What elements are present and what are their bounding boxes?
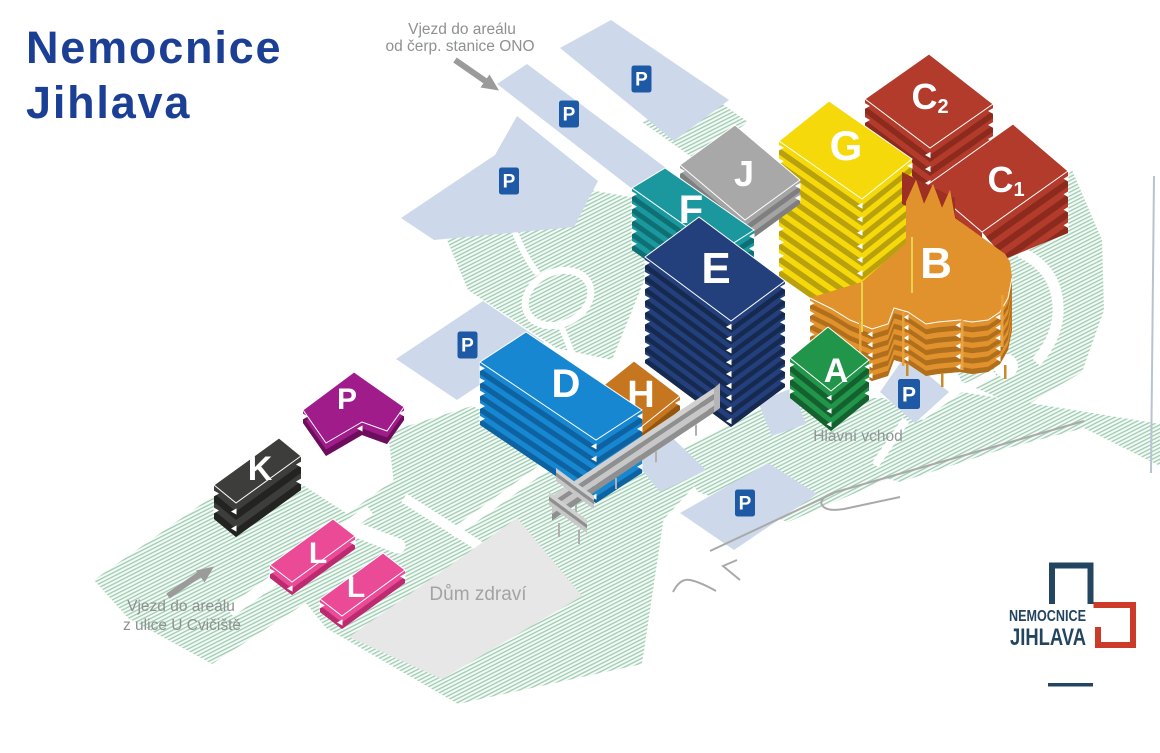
- svg-text:P: P: [902, 384, 916, 407]
- svg-text:Nemocnice: Nemocnice: [26, 22, 282, 73]
- svg-text:Dům zdraví: Dům zdraví: [429, 584, 527, 605]
- svg-text:P: P: [461, 336, 474, 357]
- svg-text:J: J: [734, 153, 754, 194]
- svg-text:A: A: [824, 352, 849, 390]
- svg-text:z ulice U Cvičiště: z ulice U Cvičiště: [123, 617, 241, 634]
- svg-text:P: P: [503, 172, 516, 193]
- svg-text:Vjezd do areálu: Vjezd do areálu: [408, 21, 516, 38]
- svg-text:G: G: [830, 122, 863, 169]
- svg-text:Vjezd do areálu: Vjezd do areálu: [127, 598, 235, 615]
- svg-text:L: L: [347, 571, 365, 604]
- svg-text:L: L: [309, 537, 327, 570]
- svg-text:D: D: [552, 362, 581, 406]
- svg-text:JIHLAVA: JIHLAVA: [1010, 624, 1086, 651]
- svg-text:P: P: [739, 494, 752, 515]
- svg-text:B: B: [920, 239, 952, 288]
- svg-text:Hlavní vchod: Hlavní vchod: [813, 428, 903, 445]
- svg-text:od čerp. stanice ONO: od čerp. stanice ONO: [385, 38, 534, 55]
- svg-text:P: P: [337, 383, 357, 416]
- svg-text:P: P: [635, 70, 648, 91]
- svg-text:E: E: [701, 244, 730, 293]
- svg-text:K: K: [248, 450, 273, 488]
- svg-text:P: P: [563, 105, 576, 126]
- svg-text:Jihlava: Jihlava: [26, 77, 191, 128]
- svg-text:NEMOCNICE: NEMOCNICE: [1009, 608, 1086, 625]
